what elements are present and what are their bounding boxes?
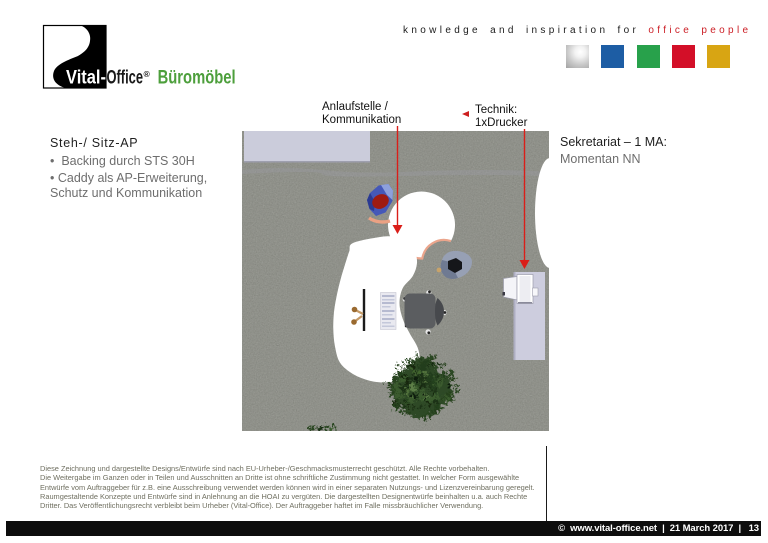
svg-text:Office: Office (107, 68, 144, 89)
svg-text:®: ® (144, 69, 151, 79)
svg-text:Büromöbel: Büromöbel (158, 68, 236, 89)
svg-text:Vital-: Vital- (66, 68, 106, 89)
